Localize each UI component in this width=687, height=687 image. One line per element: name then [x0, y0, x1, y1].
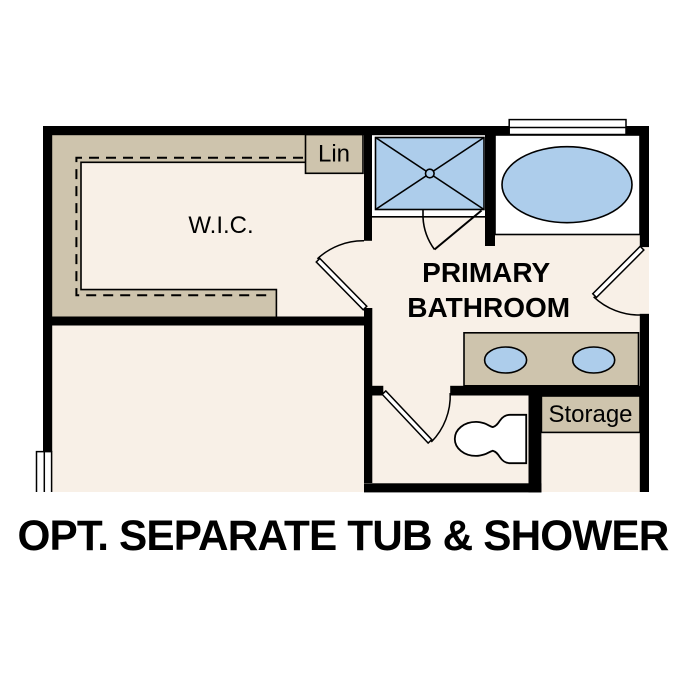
svg-text:OPT. SEPARATE TUB & SHOWER: OPT. SEPARATE TUB & SHOWER	[17, 512, 668, 559]
svg-text:Lin: Lin	[318, 141, 350, 168]
svg-text:Storage: Storage	[548, 401, 632, 428]
svg-text:BATHROOM: BATHROOM	[407, 292, 570, 323]
svg-text:W.I.C.: W.I.C.	[188, 212, 253, 239]
svg-text:PRIMARY: PRIMARY	[422, 257, 550, 288]
